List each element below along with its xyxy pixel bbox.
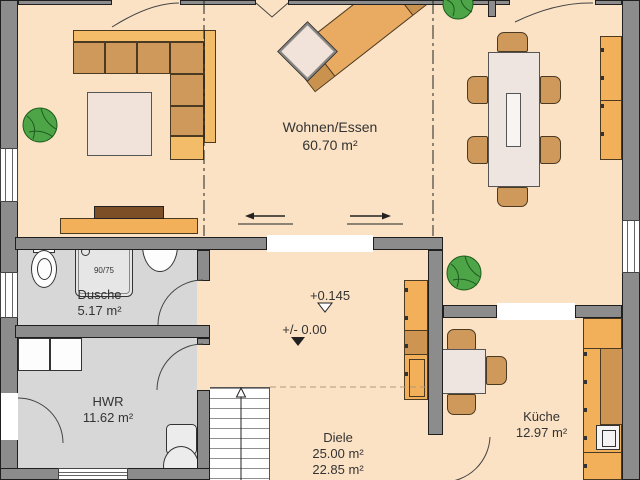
dryer — [50, 338, 82, 371]
sofa-cushion — [105, 42, 137, 74]
wall-hall-kitchen — [428, 250, 443, 435]
room-area: 11.62 m² — [68, 410, 148, 426]
sofa-cushion — [170, 74, 204, 106]
wall-living-south-right — [373, 237, 443, 250]
level-label-upper: +0.145 — [300, 288, 360, 304]
room-area: 25.00 m² — [293, 446, 383, 462]
sofa-cushion — [73, 42, 105, 74]
kitchen-chair — [486, 356, 507, 385]
room-name: HWR — [68, 394, 148, 410]
passage-kitchen — [497, 303, 575, 320]
sliding-door-opening — [267, 235, 373, 252]
room-area: 5.17 m² — [57, 303, 142, 319]
dining-chair — [540, 136, 561, 164]
coffee-table — [87, 92, 152, 156]
wall-pier — [488, 0, 496, 17]
room-area: 22.85 m² — [293, 462, 383, 478]
room-label-shower: Dusche 5.17 m² — [57, 287, 142, 319]
dining-chair — [497, 187, 528, 207]
closet-handles — [405, 288, 408, 393]
room-area: 12.97 m² — [494, 425, 589, 441]
sofa-back-rail-top — [73, 30, 216, 42]
sofa-back-rail-right — [204, 30, 216, 143]
door-opening-utility-exterior — [1, 393, 18, 440]
kitchen-chair — [447, 329, 476, 350]
staircase — [210, 387, 270, 480]
dining-chair — [467, 136, 488, 164]
room-name: Küche — [494, 409, 589, 425]
room-name: Wohnen/Essen — [245, 118, 415, 136]
wall-top — [288, 0, 510, 5]
toilet-bowl — [31, 250, 57, 288]
wall-living-south-left — [15, 237, 267, 250]
wall-top — [180, 0, 256, 5]
table-runner — [506, 93, 521, 147]
dining-chair — [467, 76, 488, 104]
wall-kitchen-north-right — [575, 305, 622, 318]
room-label-kitchen: Küche 12.97 m² — [494, 409, 589, 441]
wall-kitchen-north-left — [443, 305, 497, 318]
kitchen-counter — [583, 318, 622, 480]
level-label-zero: +/- 0.00 — [272, 322, 337, 338]
sofa-corner-cushion — [170, 42, 204, 74]
room-name: Diele — [293, 430, 383, 446]
room-label-living: Wohnen/Essen 60.70 m² — [245, 118, 415, 154]
room-label-hall: Diele 25.00 m² 22.85 m² — [293, 430, 383, 478]
dining-chair — [540, 76, 561, 104]
kitchen-table — [441, 349, 486, 394]
tv-lowboard — [60, 218, 198, 234]
sofa-chaise — [170, 136, 204, 160]
sofa-cushion — [137, 42, 170, 74]
washing-machine — [18, 338, 50, 371]
window-right-dining — [622, 220, 640, 273]
room-area: 60.70 m² — [245, 136, 415, 154]
dining-chair — [497, 32, 528, 52]
wall-shower-utility — [15, 325, 210, 338]
kitchen-chair — [447, 394, 476, 415]
window-left-living — [0, 148, 18, 202]
room-label-utility: HWR 11.62 m² — [68, 394, 148, 426]
window-left-shower — [0, 272, 18, 318]
sofa-cushion — [170, 106, 204, 136]
floor-plan: Wohnen/Essen 60.70 m² Dusche 5.17 m² HWR… — [0, 0, 640, 480]
room-name: Dusche — [57, 287, 142, 303]
wall-utility-east — [197, 390, 210, 480]
wall-top — [18, 0, 112, 5]
tv-screen — [94, 206, 164, 219]
stove — [596, 425, 620, 450]
wall-utility-east-stub — [197, 338, 210, 345]
wall-top — [595, 0, 622, 5]
window-bottom-utility — [58, 468, 128, 480]
wall-shower-east — [197, 250, 210, 281]
sideboard-handles — [601, 48, 604, 148]
shower-tray-size-label: 90/75 — [86, 266, 122, 275]
